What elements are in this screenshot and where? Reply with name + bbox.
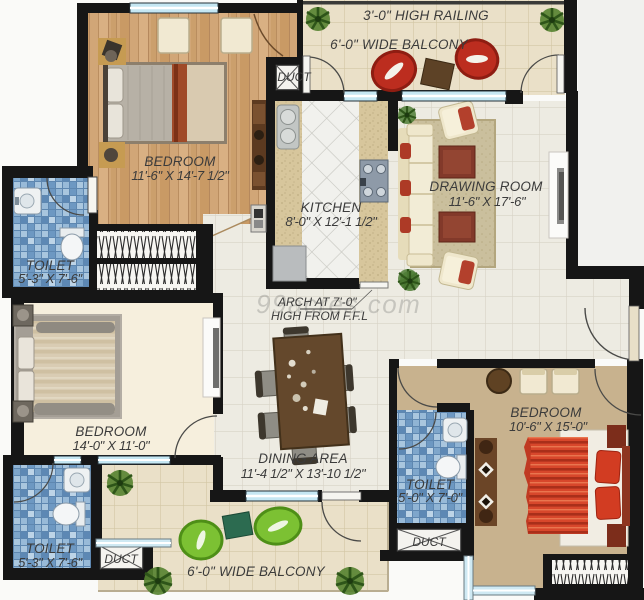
svg-text:DRAWING ROOM: DRAWING ROOM (429, 179, 543, 194)
svg-text:BEDROOM: BEDROOM (510, 405, 582, 420)
svg-text:DUCT: DUCT (277, 70, 312, 84)
svg-text:6'-0" WIDE BALCONY: 6'-0" WIDE BALCONY (330, 37, 469, 52)
svg-text:8'-0" X 12'-1 1/2": 8'-0" X 12'-1 1/2" (285, 214, 378, 229)
svg-text:11'-6" X 14'-7 1/2": 11'-6" X 14'-7 1/2" (131, 168, 230, 183)
svg-text:3'-0" HIGH RAILING: 3'-0" HIGH RAILING (363, 8, 489, 23)
svg-text:11'-4 1/2" X 13'-10 1/2": 11'-4 1/2" X 13'-10 1/2" (241, 466, 367, 481)
svg-text:5'-0" X 7'-0": 5'-0" X 7'-0" (398, 490, 463, 505)
svg-text:5'-3" X 7'-6": 5'-3" X 7'-6" (18, 271, 83, 286)
svg-text:TOILET: TOILET (26, 541, 76, 556)
svg-text:11'-6" X 17'-6": 11'-6" X 17'-6" (449, 194, 527, 209)
svg-text:BEDROOM: BEDROOM (144, 154, 216, 169)
svg-text:6'-0" WIDE BALCONY: 6'-0" WIDE BALCONY (187, 564, 326, 579)
svg-text:HIGH FROM F.F.L: HIGH FROM F.F.L (271, 309, 368, 323)
svg-text:DINING AREA: DINING AREA (258, 451, 347, 466)
svg-text:DUCT: DUCT (412, 535, 447, 549)
svg-text:5'-3" X 7'-6": 5'-3" X 7'-6" (18, 555, 83, 570)
svg-text:ARCH AT 7'-0": ARCH AT 7'-0" (277, 295, 357, 309)
svg-text:10'-6" X 15'-0": 10'-6" X 15'-0" (509, 419, 588, 434)
svg-text:BEDROOM: BEDROOM (75, 424, 147, 439)
svg-text:14'-0" X 11'-0": 14'-0" X 11'-0" (73, 438, 151, 453)
svg-text:DUCT: DUCT (104, 552, 139, 566)
svg-text:KITCHEN: KITCHEN (301, 200, 362, 215)
